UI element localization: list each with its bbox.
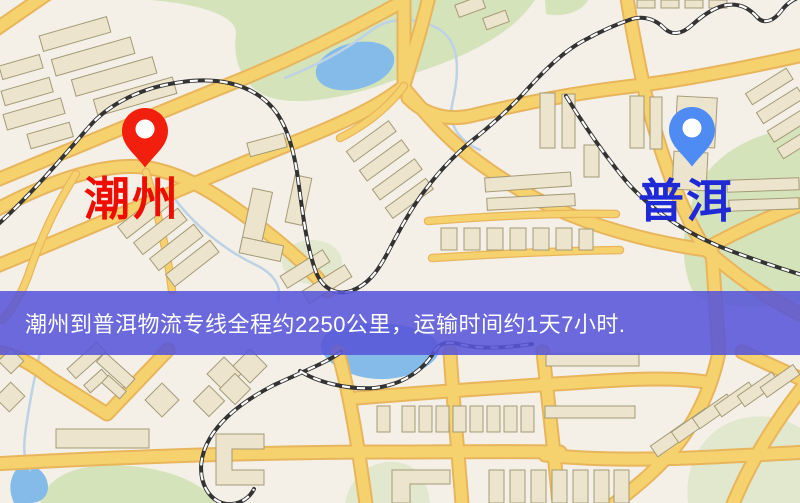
destination-pin-icon[interactable] bbox=[668, 105, 716, 167]
route-info-banner: 潮州到普洱物流专线全程约2250公里，运输时间约1天7小时. bbox=[0, 291, 800, 355]
route-info-text: 潮州到普洱物流专线全程约2250公里，运输时间约1天7小时. bbox=[25, 307, 626, 339]
map-canvas bbox=[0, 0, 800, 503]
destination-city-label: 普洱 bbox=[638, 178, 734, 224]
origin-pin-icon[interactable] bbox=[121, 106, 169, 168]
origin-city-label: 潮州 bbox=[84, 176, 180, 222]
map-view: 潮州 普洱 潮州到普洱物流专线全程约2250公里，运输时间约1天7小时. bbox=[0, 0, 800, 503]
